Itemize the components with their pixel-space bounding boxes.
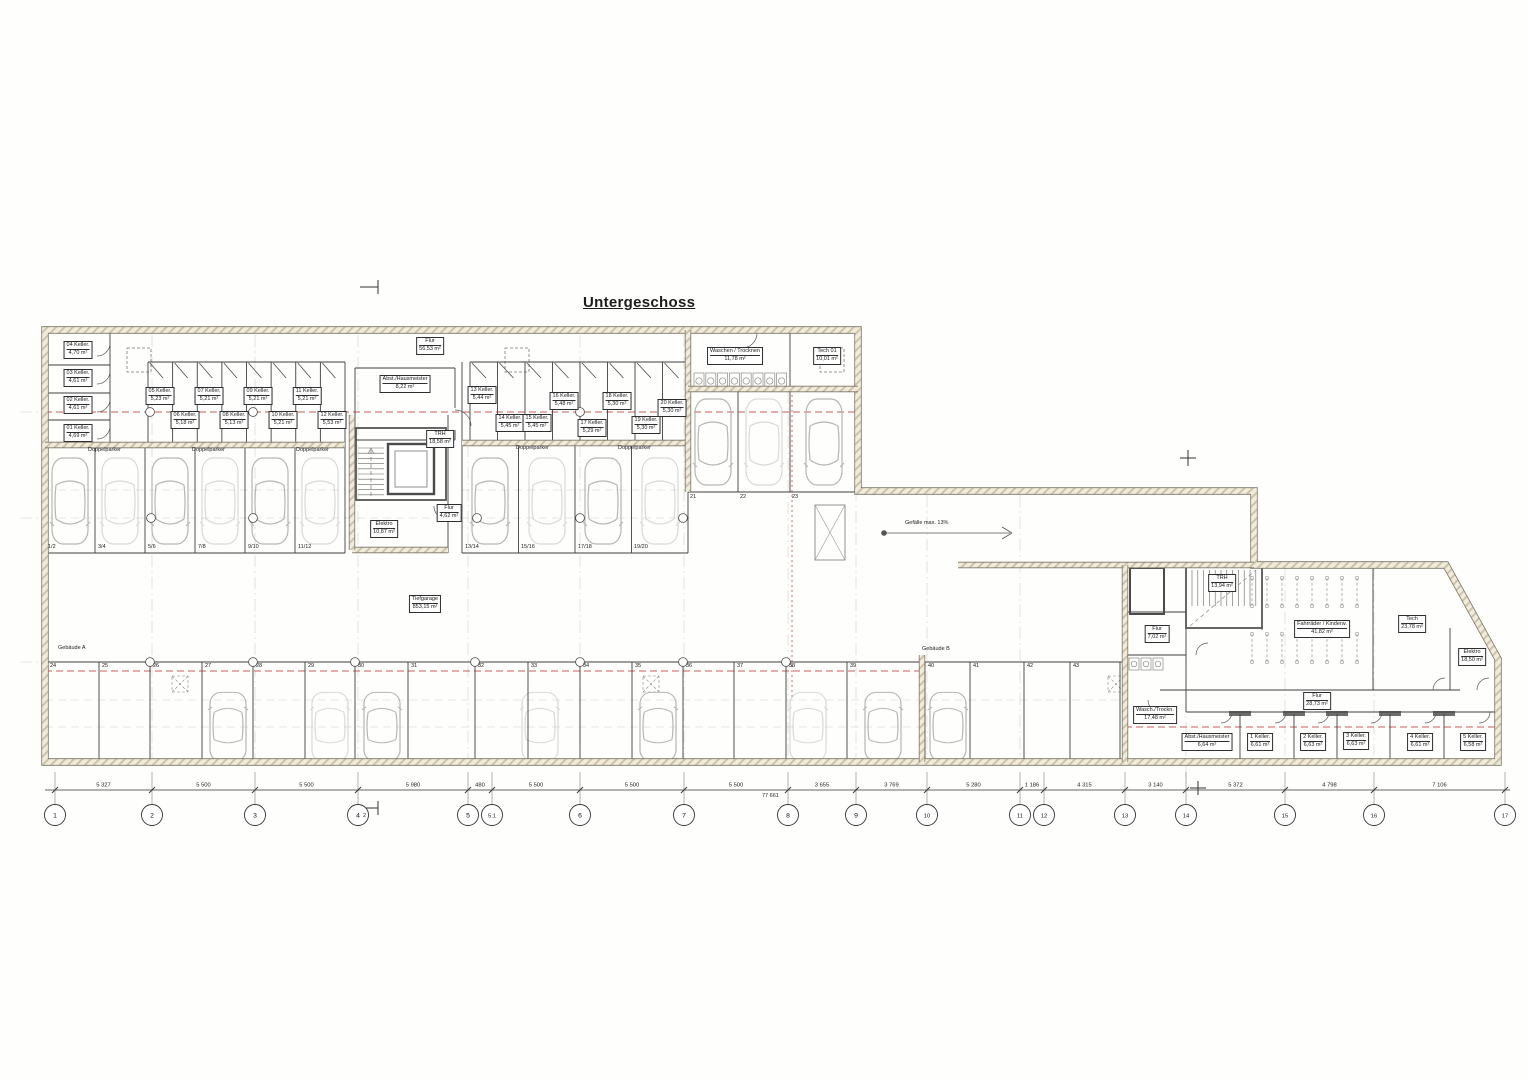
- parking-number: 23: [792, 494, 798, 500]
- room-label: 05 Keller.5,23 m²: [146, 387, 175, 405]
- room-label: Flur56,53 m²: [416, 337, 444, 355]
- grid-bubble-number: 7: [682, 813, 686, 820]
- grid-bubble: 2: [142, 805, 163, 826]
- room-label-area: 5,45 m²: [499, 422, 522, 430]
- room-label-area: 5,48 m²: [553, 400, 576, 408]
- room-label-name: 15 Keller.: [526, 415, 549, 422]
- room-label-area: 5,45 m²: [526, 422, 549, 430]
- room-label-area: 5,30 m²: [606, 400, 629, 408]
- room-label: Tech 0110,01 m²: [813, 347, 841, 365]
- room-label-name: 06 Keller.: [174, 412, 197, 419]
- grid-bubble-number: 17: [1502, 814, 1508, 820]
- car-icon: [583, 458, 623, 544]
- grid-bubble-number: 6: [578, 813, 582, 820]
- plan-title: Untergeschoss: [583, 294, 695, 311]
- parking-number: 42: [1027, 663, 1033, 669]
- dimension-text: 5 500: [196, 783, 211, 789]
- room-label: Tech23,78 m²: [1398, 615, 1426, 633]
- room-label: 04 Keller.4,70 m²: [64, 341, 93, 359]
- dimension-text: 3 140: [1148, 783, 1163, 789]
- building-b-label: Gebäude B: [922, 646, 950, 652]
- section-marker-icon: [1180, 450, 1196, 466]
- doppelparker-label: Doppelparker: [296, 447, 329, 453]
- grid-bubble-number: 14: [1183, 814, 1190, 820]
- room-label-name: Abst./Hausmeister: [1185, 734, 1230, 741]
- room-label-area: 4,62 m²: [440, 512, 459, 520]
- dimension-text: 5 980: [406, 783, 421, 789]
- room-label: Wasch./Trockn.17,48 m²: [1133, 706, 1177, 724]
- section-marker-icon: [1190, 781, 1206, 795]
- grid-bubble-number: 1: [53, 813, 57, 820]
- grid-bubble-number: 13: [1122, 814, 1128, 820]
- room-label: TRH18,58 m²: [426, 430, 454, 448]
- room-label-area: 6,64 m²: [1185, 741, 1230, 749]
- room-label: 5 Keller.6,58 m²: [1460, 733, 1486, 751]
- grid-bubble: 15: [1275, 805, 1296, 826]
- parking-number: 43: [1073, 663, 1079, 669]
- grid-bubble-number: 15: [1282, 814, 1288, 820]
- grid-bubble: 8: [778, 805, 799, 826]
- room-label-area: 7,02 m²: [1148, 633, 1167, 641]
- room-label: 10 Keller.5,21 m²: [269, 411, 298, 429]
- room-label-name: 16 Keller.: [553, 393, 576, 400]
- parking-number: 34: [583, 663, 589, 669]
- grid-bubble: 16: [1364, 805, 1385, 826]
- grid-bubble: 6: [570, 805, 591, 826]
- room-label-name: Flur: [440, 505, 459, 512]
- dimension-text: 5 280: [966, 783, 981, 789]
- parking-number: 5/6: [148, 544, 156, 550]
- grid-bubble-number: 12: [1041, 814, 1047, 820]
- car-icon: [470, 458, 510, 544]
- room-label-name: 17 Keller.: [581, 420, 604, 427]
- room-label-area: 5,13 m²: [223, 419, 246, 427]
- room-label-area: 28,73 m²: [1306, 700, 1328, 708]
- room-label-area: 8,22 m²: [383, 383, 428, 391]
- parking-number: 36: [686, 663, 692, 669]
- room-label-name: Wasch./Trockn.: [1136, 707, 1174, 714]
- room-label: Flur7,02 m²: [1145, 625, 1170, 643]
- doppelparker-label: Doppelparker: [516, 445, 549, 451]
- room-label-area: 5,29 m²: [581, 427, 604, 435]
- room-label-name: 5 Keller.: [1463, 734, 1483, 741]
- dimension-text: 480: [475, 783, 485, 789]
- room-label: 2 Keller.6,63 m²: [1300, 733, 1326, 751]
- room-label-name: TRH: [429, 431, 451, 438]
- room-label: 07 Keller.5,21 m²: [195, 387, 224, 405]
- grid-bubble: 5.1: [482, 805, 503, 826]
- grid-bubble: 3: [245, 805, 266, 826]
- parking-number: 29: [308, 663, 314, 669]
- room-label-area: 18,58 m²: [429, 438, 451, 446]
- room-label: 06 Keller.5,18 m²: [171, 411, 200, 429]
- grid-bubble: 9: [846, 805, 867, 826]
- room-label-area: 5,18 m²: [174, 419, 197, 427]
- room-label-area: 4,61 m²: [67, 377, 90, 385]
- garage-room-label: Tiefgarage 853,15 m²: [409, 595, 441, 613]
- room-label-area: 5,23 m²: [149, 395, 172, 403]
- room-label-name: 12 Keller.: [321, 412, 344, 419]
- room-label: 02 Keller.4,61 m²: [64, 396, 93, 414]
- doppelparker-label: Doppelparker: [192, 447, 225, 453]
- room-label-name: 07 Keller.: [198, 388, 221, 395]
- car-icon: [100, 458, 140, 544]
- room-label-area: 6,63 m²: [1346, 740, 1366, 748]
- parking-number: 26: [153, 663, 159, 669]
- parking-number: 22: [740, 494, 746, 500]
- parking-number: 15/16: [521, 544, 535, 550]
- room-label-area: 6,58 m²: [1463, 741, 1483, 749]
- room-label-name: 01 Keller.: [67, 425, 90, 432]
- parking-number: 17/18: [578, 544, 592, 550]
- room-label-name: Tech 01: [816, 348, 838, 355]
- dimension-total-label: 77 661: [762, 793, 779, 799]
- doppelparker-label: Doppelparker: [618, 445, 651, 451]
- grid-bubble-number: 9: [854, 813, 858, 820]
- dimension-line: 5 3275 5005 5005 9804805 5005 5005 5003 …: [45, 772, 1510, 804]
- grid-bubble-number: 11: [1017, 814, 1023, 820]
- dimension-text: 5 372: [1228, 783, 1243, 789]
- room-label-name: 14 Keller.: [499, 415, 522, 422]
- floorplan-drawing: 5 3275 5005 5005 9804805 5005 5005 5003 …: [0, 0, 1528, 1080]
- room-label-area: 5,30 m²: [635, 424, 658, 432]
- room-label-area: 5,21 m²: [247, 395, 270, 403]
- parking-number: 39: [850, 663, 856, 669]
- car-icon: [150, 458, 190, 544]
- room-label-name: Flur: [1148, 626, 1167, 633]
- parking-number: 13/14: [465, 544, 479, 550]
- grid-bubble-number: 3: [253, 813, 257, 820]
- car-icon: [250, 458, 290, 544]
- room-label: 09 Keller.5,21 m²: [244, 387, 273, 405]
- room-label-name: 1 Keller.: [1250, 734, 1270, 741]
- room-label-name: 09 Keller.: [247, 388, 270, 395]
- dimension-text: 1 186: [1025, 783, 1040, 789]
- room-label-name: Fahrräder / Kinderw.: [1297, 621, 1347, 628]
- room-label: 3 Keller.6,63 m²: [1343, 732, 1369, 750]
- grid-bubble: 12: [1034, 805, 1055, 826]
- room-label: 11 Keller.5,21 m²: [293, 387, 322, 405]
- room-label: 1 Keller.6,61 m²: [1247, 733, 1273, 751]
- section-marker-label: 2: [363, 813, 366, 819]
- grid-bubble-number: 8: [786, 813, 790, 820]
- room-label-name: 3 Keller.: [1346, 733, 1366, 740]
- dimension-text: 5 500: [625, 783, 640, 789]
- parking-number: 11/12: [298, 544, 311, 550]
- parking-number: 1/2: [48, 544, 56, 550]
- room-label-name: 02 Keller.: [67, 397, 90, 404]
- parking-number: 40: [928, 663, 934, 669]
- section-lines-red: [45, 390, 1500, 727]
- room-label-name: TRH: [1211, 575, 1233, 582]
- grid-bubble: 13: [1115, 805, 1136, 826]
- room-label: Elektro10,87 m²: [370, 520, 398, 538]
- dimension-text: 5 327: [96, 783, 111, 789]
- grid-bubble: 17: [1495, 805, 1516, 826]
- room-label-area: 4,70 m²: [67, 349, 90, 357]
- room-label-name: Elektro: [1461, 649, 1483, 656]
- grid-bubble: 7: [674, 805, 695, 826]
- parking-number: 31: [411, 663, 417, 669]
- room-label-name: 08 Keller.: [223, 412, 246, 419]
- parking-number: 28: [256, 663, 262, 669]
- car-icon: [640, 458, 680, 544]
- room-label-area: 11,78 m²: [710, 355, 760, 363]
- parking-number: 7/8: [198, 544, 206, 550]
- room-label-area: 23,78 m²: [1401, 623, 1423, 631]
- room-label-name: 4 Keller.: [1410, 734, 1430, 741]
- car-icon: [200, 458, 240, 544]
- dimension-text: 5 500: [529, 783, 544, 789]
- parking-number: 24: [50, 663, 56, 669]
- room-label-name: Elektro: [373, 521, 395, 528]
- parking-number: 25: [102, 663, 108, 669]
- doppelparker-label: Doppelparker: [88, 447, 121, 453]
- room-label-name: 19 Keller.: [635, 417, 658, 424]
- room-label-area: 4,69 m²: [67, 432, 90, 440]
- car-icon: [928, 692, 968, 761]
- room-label-area: 10,01 m²: [816, 355, 838, 363]
- room-label: Flur4,62 m²: [437, 504, 462, 522]
- room-label-area: 6,61 m²: [1250, 741, 1270, 749]
- room-label-name: 2 Keller.: [1303, 734, 1323, 741]
- grid-bubble: 11: [1010, 805, 1031, 826]
- dimension-text: 5 500: [299, 783, 314, 789]
- room-label-area: 13,94 m²: [1211, 582, 1233, 590]
- room-label: 17 Keller.5,29 m²: [578, 419, 607, 437]
- room-label: 03 Keller.4,61 m²: [64, 369, 93, 387]
- room-label: 13 Keller.5,44 m²: [468, 386, 497, 404]
- room-label-name: 13 Keller.: [471, 387, 494, 394]
- grid-bubble-number: 2: [150, 813, 154, 820]
- car-icon: [527, 458, 567, 544]
- grid-bubble-number: 5.1: [488, 814, 496, 820]
- garage-name: Tiefgarage: [412, 596, 438, 603]
- car-icon: [50, 458, 90, 544]
- room-label-area: 4,61 m²: [67, 404, 90, 412]
- room-label: 15 Keller.5,45 m²: [523, 414, 552, 432]
- room-label: Elektro18,50 m²: [1458, 648, 1486, 666]
- floorplan-canvas: 5 3275 5005 5005 9804805 5005 5005 5003 …: [0, 0, 1528, 1080]
- parking-number: 21: [690, 494, 696, 500]
- room-label-name: 10 Keller.: [272, 412, 295, 419]
- grid-bubble: 10: [917, 805, 938, 826]
- room-label: Abst./Hausmeister8,22 m²: [380, 375, 431, 393]
- room-label: 01 Keller.4,69 m²: [64, 424, 93, 442]
- room-label-name: 03 Keller.: [67, 370, 90, 377]
- room-label: 16 Keller.5,48 m²: [550, 392, 579, 410]
- dimension-text: 3 769: [884, 783, 899, 789]
- room-label: TRH13,94 m²: [1208, 574, 1236, 592]
- parking-number: 38: [789, 663, 795, 669]
- room-label: 14 Keller.5,45 m²: [496, 414, 525, 432]
- dimension-text: 5 500: [729, 783, 744, 789]
- room-label-name: Tech: [1401, 616, 1423, 623]
- room-label: 4 Keller.6,61 m²: [1407, 733, 1433, 751]
- grid-bubble-number: 10: [924, 814, 930, 820]
- room-label-area: 17,48 m²: [1136, 714, 1174, 722]
- parking-number: 9/10: [248, 544, 259, 550]
- dimension-text: 7 106: [1432, 783, 1447, 789]
- parking-number: 33: [531, 663, 537, 669]
- dimension-text: 4 315: [1077, 783, 1092, 789]
- grid-bubble: 14: [1176, 805, 1197, 826]
- grid-bubble: 1: [45, 805, 66, 826]
- parking-number: 37: [737, 663, 743, 669]
- garage-area: 853,15 m²: [412, 603, 438, 611]
- section-marker-icon: [360, 280, 378, 294]
- room-label-area: 5,21 m²: [272, 419, 295, 427]
- room-label-name: Flur: [1306, 693, 1328, 700]
- grid-bubble-number: 16: [1371, 814, 1377, 820]
- room-label: Fahrräder / Kinderw.41,82 m²: [1294, 620, 1350, 638]
- grid-bubble: 5: [458, 805, 479, 826]
- room-label-name: 18 Keller.: [606, 393, 629, 400]
- dimension-text: 3 655: [815, 783, 830, 789]
- grid-bubble-number: 5: [466, 813, 470, 820]
- parking-number: 3/4: [98, 544, 106, 550]
- parking-number: 30: [358, 663, 364, 669]
- parking-number: 19/20: [634, 544, 648, 550]
- room-label: Abst./Hausmeister6,64 m²: [1182, 733, 1233, 751]
- room-label-area: 56,53 m²: [419, 345, 441, 353]
- parking-number: 32: [478, 663, 484, 669]
- room-label-name: 05 Keller.: [149, 388, 172, 395]
- room-label-area: 18,50 m²: [1461, 656, 1483, 664]
- room-label-name: Abst./Hausmeister: [383, 376, 428, 383]
- room-label-area: 5,30 m²: [661, 407, 684, 415]
- room-label: 20 Keller.5,30 m²: [658, 399, 687, 417]
- room-label-area: 6,63 m²: [1303, 741, 1323, 749]
- room-label: Waschen / Trocknen11,78 m²: [707, 347, 763, 365]
- room-label-area: 41,82 m²: [1297, 628, 1347, 636]
- room-label: Flur28,73 m²: [1303, 692, 1331, 710]
- room-label: 19 Keller.5,30 m²: [632, 416, 661, 434]
- room-label-area: 5,44 m²: [471, 394, 494, 402]
- room-label-name: Flur: [419, 338, 441, 345]
- room-label-area: 10,87 m²: [373, 528, 395, 536]
- room-label-name: Waschen / Trocknen: [710, 348, 760, 355]
- ramp-slope-label: Gefälle max. 13%: [905, 520, 948, 526]
- room-label: 12 Keller.5,53 m²: [318, 411, 347, 429]
- building-a-label: Gebäude A: [58, 645, 86, 651]
- car-icon: [300, 458, 340, 544]
- room-label-area: 5,53 m²: [321, 419, 344, 427]
- room-label: 08 Keller.5,13 m²: [220, 411, 249, 429]
- parked-cars: [50, 399, 968, 761]
- room-label-area: 5,21 m²: [198, 395, 221, 403]
- dimension-text: 4 798: [1322, 783, 1337, 789]
- parking-number: 27: [205, 663, 211, 669]
- parking-number: 35: [635, 663, 641, 669]
- room-label-name: 11 Keller.: [296, 388, 319, 395]
- room-label-name: 20 Keller.: [661, 400, 684, 407]
- grid-bubble-number: 4: [356, 813, 360, 820]
- room-label-name: 04 Keller.: [67, 342, 90, 349]
- room-label-area: 5,21 m²: [296, 395, 319, 403]
- room-label-area: 6,61 m²: [1410, 741, 1430, 749]
- room-label: 18 Keller.5,30 m²: [603, 392, 632, 410]
- parking-number: 41: [973, 663, 979, 669]
- grid-bubbles: 123455.167891011121314151617: [45, 805, 1516, 826]
